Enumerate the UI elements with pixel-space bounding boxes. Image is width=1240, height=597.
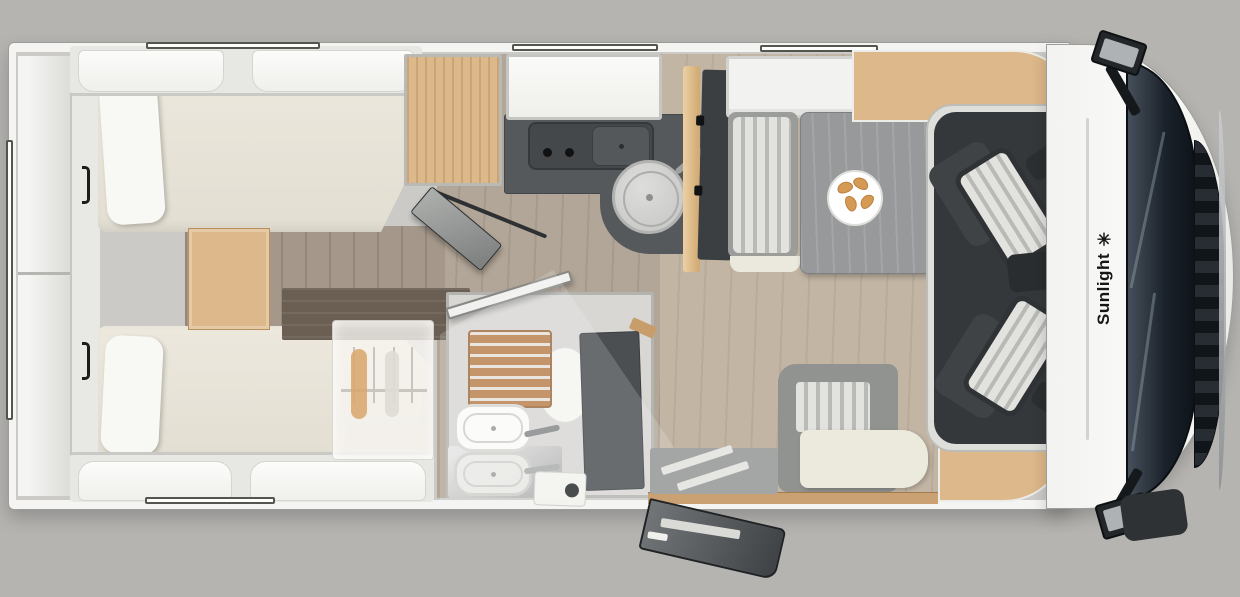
rear-storage-unit	[18, 56, 70, 496]
fridge-cabinet	[404, 54, 502, 186]
cabinet-handle-icon	[82, 342, 90, 380]
croissant	[851, 175, 870, 193]
locker-door	[78, 50, 224, 92]
brand-logo: Sunlight ✳	[1094, 186, 1120, 366]
window-top-kitchen	[512, 44, 658, 51]
window-top-rear	[146, 42, 320, 49]
bench-backrest	[733, 117, 791, 253]
croissant	[843, 194, 859, 213]
cabinet-handle-icon	[82, 166, 90, 204]
hood-groove	[1086, 118, 1089, 440]
hanging-garment	[385, 351, 399, 417]
kitchen-upper-cabinet	[506, 54, 662, 120]
croissant	[858, 192, 877, 211]
bedroom-step	[188, 228, 270, 330]
locker-door	[78, 461, 232, 501]
wardrobe-overlay	[332, 320, 434, 460]
bench-seat-cushion	[730, 256, 800, 272]
locker-door	[252, 50, 414, 92]
dinette-bench-side	[728, 112, 798, 258]
window-rear-wall	[6, 140, 13, 420]
hob-knob-icon	[543, 148, 552, 157]
bumper-chrome-trim	[1219, 110, 1226, 490]
plate-with-croissants	[827, 170, 883, 226]
window-bottom-bedroom	[145, 497, 275, 504]
shelf-divider	[18, 272, 70, 275]
hanging-garment	[351, 349, 367, 419]
windshield	[1126, 62, 1198, 500]
locker-door	[250, 461, 426, 501]
motorhome-floorplan: Sunlight ✳	[0, 0, 1240, 597]
hob-knob-icon	[565, 148, 574, 157]
bench-backrest	[796, 382, 870, 432]
croissant	[836, 180, 855, 196]
wheel-shadow	[1119, 488, 1189, 542]
overhead-lockers-top	[70, 46, 422, 96]
bench-seat-cushion	[800, 430, 928, 488]
bed-pillow	[100, 335, 164, 456]
hanger-icon	[411, 347, 413, 403]
entry-step	[650, 448, 778, 494]
entrance-door-open	[638, 498, 786, 580]
headboard-cabinet	[70, 56, 100, 496]
hanger-icon	[373, 347, 375, 403]
